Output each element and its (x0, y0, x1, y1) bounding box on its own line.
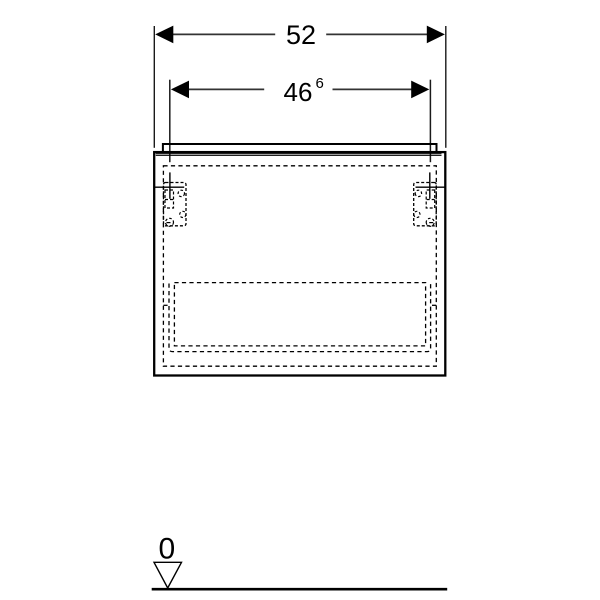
svg-text:46: 46 (284, 77, 313, 107)
svg-text:6: 6 (316, 75, 324, 92)
svg-text:52: 52 (286, 20, 316, 50)
svg-text:0: 0 (159, 533, 176, 566)
